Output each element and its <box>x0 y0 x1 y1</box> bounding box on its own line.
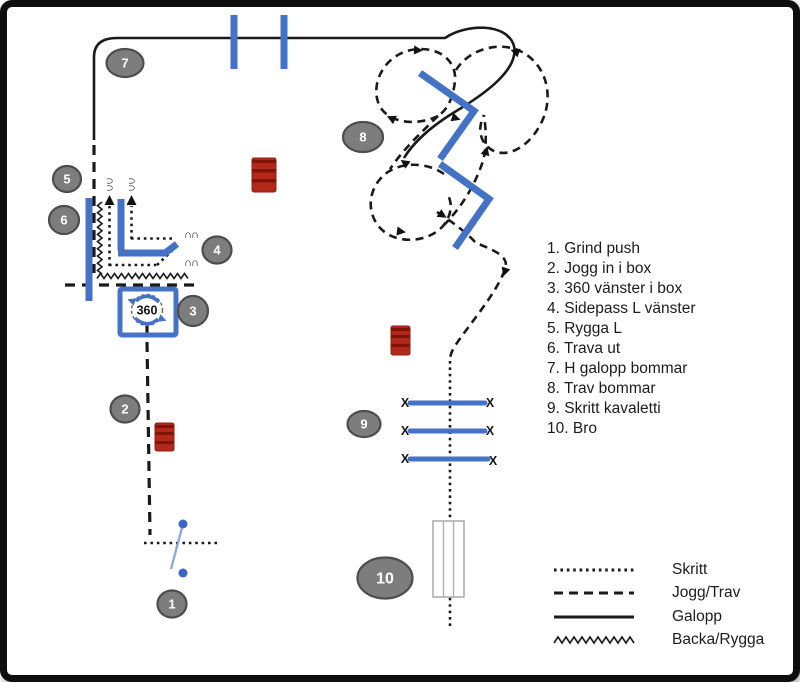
legend-item-skritt: Skritt <box>552 558 764 582</box>
obstacle-badge-8: 8 <box>343 122 383 152</box>
skritt-line-icon <box>552 563 636 577</box>
gate <box>171 520 188 578</box>
backa-rygga-line-icon <box>552 633 636 647</box>
svg-text:3: 3 <box>189 304 196 319</box>
canter-poles <box>234 15 284 69</box>
l-rail <box>118 199 177 253</box>
obstacle-badge-1: 1 <box>158 591 187 618</box>
legend-label: Skritt <box>672 561 707 579</box>
legend: Skritt Jogg/Trav Galopp Backa/Rygga <box>552 558 764 652</box>
barrel-1 <box>252 158 276 192</box>
trav-line-box-descent <box>147 325 150 535</box>
legend-item-jogg-trav: Jogg/Trav <box>552 582 764 606</box>
legend-label: Galopp <box>672 608 722 626</box>
obstacle-list-item: 8. Trav bommar <box>547 379 695 399</box>
obstacle-list-item: 9. Skritt kavaletti <box>547 399 695 419</box>
jogg-trav-line-icon <box>552 586 636 600</box>
horseshoe-marker: ∩∩ <box>184 229 198 241</box>
legend-label: Backa/Rygga <box>672 631 764 649</box>
obstacle-badge-2: 2 <box>111 396 140 423</box>
horseshoe-marker: ∩∩ <box>104 177 116 191</box>
svg-text:7: 7 <box>121 56 128 71</box>
kavaletti-end-marker: X <box>401 452 410 466</box>
legend-label: Jogg/Trav <box>672 584 740 602</box>
kavaletti-end-marker: X <box>401 424 410 438</box>
bridge <box>433 521 464 597</box>
obstacle-list-item: 7. H galopp bommar <box>547 359 695 379</box>
svg-text:4: 4 <box>213 243 221 258</box>
backa-zigzag-vertical <box>98 202 103 274</box>
obstacle-list-item: 1. Grind push <box>547 239 695 259</box>
svg-text:6: 6 <box>60 213 67 228</box>
obstacle-badge-6: 6 <box>49 206 79 234</box>
kavaletti-end-marker: X <box>486 396 495 410</box>
svg-text:1: 1 <box>168 597 175 612</box>
galopp-line-icon <box>552 610 636 624</box>
svg-text:5: 5 <box>63 172 70 187</box>
svg-text:8: 8 <box>359 130 366 145</box>
obstacle-badge-10: 10 <box>358 558 413 599</box>
backa-zigzag-horizontal <box>97 274 188 279</box>
obstacle-badge-5: 5 <box>53 166 81 192</box>
barrel-2 <box>391 326 410 355</box>
obstacle-list-item: 4. Sidepass L vänster <box>547 299 695 319</box>
svg-text:2: 2 <box>121 402 128 417</box>
kavaletti-end-marker: X <box>401 396 410 410</box>
horseshoe-marker: ∩∩ <box>184 257 198 269</box>
barrel-3 <box>155 423 174 451</box>
svg-text:9: 9 <box>360 417 367 432</box>
obstacle-list: 1. Grind push 2. Jogg in i box 3. 360 vä… <box>547 239 695 439</box>
obstacle-list-item: 6. Trava ut <box>547 339 695 359</box>
obstacle-list-item: 2. Jogg in i box <box>547 259 695 279</box>
legend-item-galopp: Galopp <box>552 605 764 629</box>
course-diagram: 360 ∩∩ ∩∩ ∩∩ ∩∩ X X X X X X 1 2 3 <box>0 0 800 682</box>
obstacle-list-item: 10. Bro <box>547 419 695 439</box>
obstacle-badge-9: 9 <box>348 411 381 437</box>
obstacle-badge-3: 3 <box>178 296 208 326</box>
turn-360-label: 360 <box>137 304 158 318</box>
legend-item-backa-rygga: Backa/Rygga <box>552 629 764 653</box>
zigzag-trot-poles <box>420 73 489 248</box>
kavaletti-end-marker: X <box>486 424 495 438</box>
obstacle-list-item: 3. 360 vänster i box <box>547 279 695 299</box>
svg-text:10: 10 <box>376 571 394 588</box>
obstacle-badge-7: 7 <box>107 49 144 77</box>
kavaletti-end-marker: X <box>489 454 498 468</box>
obstacle-badge-4: 4 <box>203 237 232 264</box>
obstacle-list-item: 5. Rygga L <box>547 319 695 339</box>
horseshoe-marker: ∩∩ <box>126 177 138 191</box>
serpentine-path <box>371 47 548 361</box>
